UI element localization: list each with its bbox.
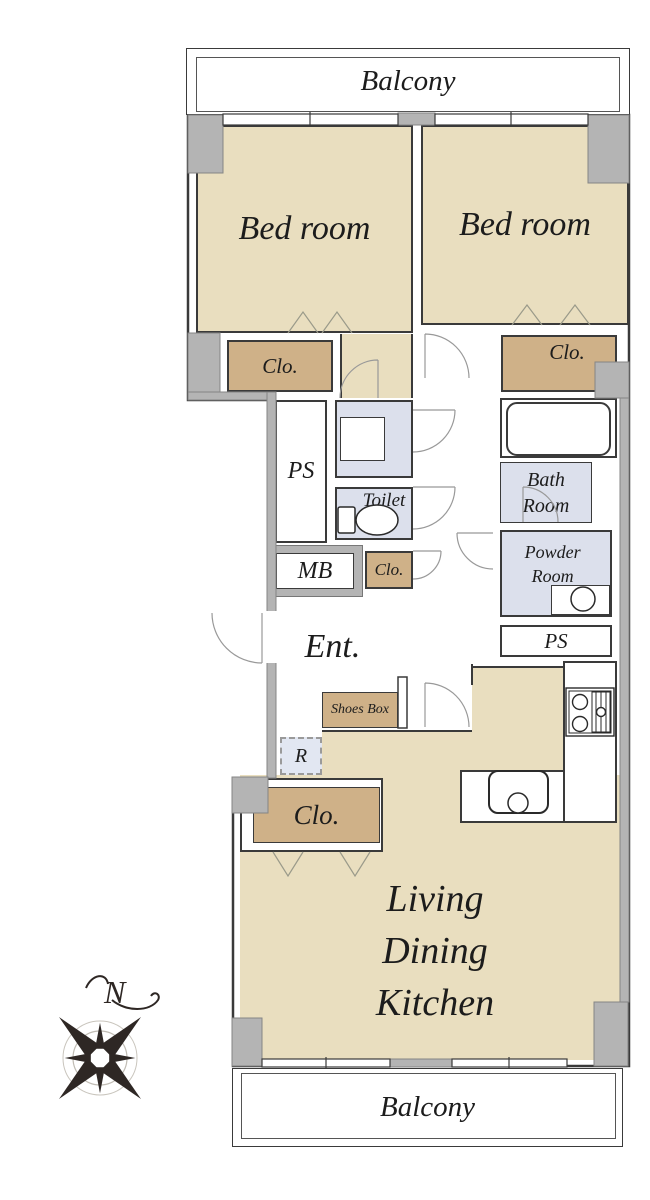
bathroom-label: Bath Room — [501, 463, 591, 522]
shoes-box-label: Shoes Box — [323, 693, 397, 727]
balcony-top: Balcony — [186, 48, 630, 115]
wall-bottom-center — [390, 1059, 452, 1067]
compass-swash — [112, 993, 159, 1009]
closet-ldk-label: Clo. — [254, 788, 379, 842]
pillar-mid-left — [188, 333, 220, 392]
entrance-opening — [264, 611, 278, 663]
wall-stub — [398, 677, 407, 728]
bathroom-tub-room — [500, 398, 617, 458]
wall-band-left — [188, 392, 267, 400]
kitchen-counter-bottom — [460, 770, 565, 823]
closet-ldk: Clo. — [253, 787, 380, 843]
shoes-box: Shoes Box — [322, 692, 398, 728]
balcony-bottom-inner-line — [241, 1073, 616, 1139]
refrigerator-space: R — [280, 737, 322, 775]
laundry-room — [335, 400, 413, 478]
closet-hall-label: Clo. — [367, 553, 411, 587]
entrance-label: Ent. — [280, 622, 385, 672]
balcony-bottom: Balcony — [232, 1068, 623, 1147]
closet-hall: Clo. — [365, 551, 413, 589]
toilet-room: Toilet — [335, 487, 413, 540]
balcony-top-inner-line — [196, 57, 620, 112]
toilet-label: Toilet — [347, 490, 421, 512]
door-arc-hall-closet — [413, 551, 441, 579]
window-top-right — [435, 114, 588, 125]
kitchen-floor-arm — [322, 730, 472, 775]
kitchen-floor-upper — [472, 666, 563, 775]
mb-label: MB — [277, 554, 353, 588]
closet-left-label: Clo. — [229, 342, 331, 390]
compass-swash — [86, 976, 108, 988]
kitchen-counter-right — [563, 661, 617, 823]
meter-box: MB — [267, 545, 363, 597]
powder-room-label: Powder Room — [504, 536, 601, 592]
door-arc-powder — [457, 533, 493, 569]
bedroom-left-doorway — [340, 334, 413, 398]
compass-north-label: N — [103, 974, 127, 1010]
door-arc-laundry — [413, 410, 455, 452]
bathroom-label-line1: Bath — [527, 467, 565, 493]
door-arc-toilet — [413, 487, 455, 529]
compass-rose-icon: N — [18, 974, 182, 1140]
bedroom-left: Bed room — [196, 125, 413, 333]
wall-right-strip — [620, 398, 629, 1002]
pipe-space-right: PS — [500, 625, 612, 657]
washer-pan-icon — [340, 417, 385, 461]
meter-box-inner: MB — [276, 553, 354, 589]
window-bottom-left — [262, 1059, 390, 1067]
floor-plan: Balcony Bed room Bed room Clo. Clo. PS T… — [0, 0, 650, 1200]
bathroom: Bath Room — [500, 462, 592, 523]
door-arc-ldk — [425, 683, 469, 727]
ps-left-label: PS — [277, 402, 325, 541]
closet-bedroom-right: Clo. — [501, 335, 617, 392]
bedroom-left-label: Bed room — [198, 127, 411, 331]
bathroom-label-line2: Room — [523, 493, 570, 519]
door-arc-entrance — [212, 613, 262, 663]
bedroom-right-label: Bed room — [423, 127, 627, 323]
powder-room: Powder Room — [500, 530, 612, 617]
closet-bedroom-left: Clo. — [227, 340, 333, 392]
powder-label-line1: Powder — [525, 540, 581, 564]
door-arc-bedroom-right — [425, 334, 469, 378]
bedroom-right: Bed room — [421, 125, 629, 325]
pipe-space-left: PS — [275, 400, 327, 543]
ps-right-label: PS — [502, 627, 610, 655]
closet-ldk-frame: Clo. — [240, 778, 383, 852]
window-top-left — [223, 114, 398, 125]
refrigerator-label: R — [282, 739, 320, 773]
vanity-counter — [551, 585, 610, 615]
window-bottom-right — [452, 1059, 567, 1067]
closet-right-label: Clo. — [511, 337, 623, 369]
